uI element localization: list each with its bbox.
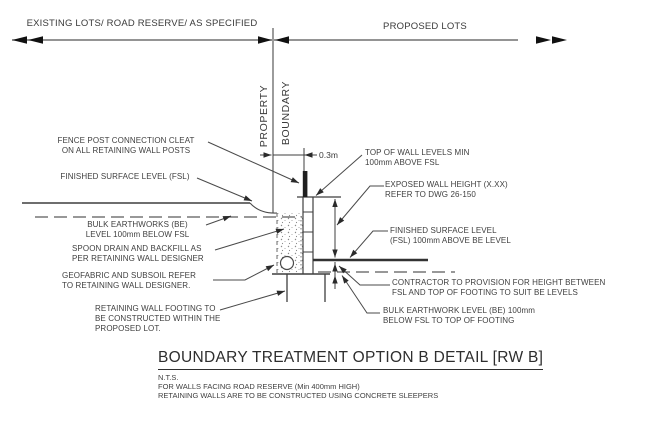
geofabric-leader xyxy=(213,265,274,280)
retaining-wall-section xyxy=(297,197,341,274)
label-line: PER RETAINING WALL DESIGNER xyxy=(72,254,204,264)
label-line: REFER TO DWG 26-150 xyxy=(385,190,508,200)
top-of-wall-leader xyxy=(316,155,362,196)
bulk-right-leader xyxy=(342,276,380,314)
label-line: ON ALL RETAINING WALL POSTS xyxy=(40,146,212,156)
bulk-earthworks-left-label: BULK EARTHWORKS (BE) LEVEL 100mm BELOW F… xyxy=(65,220,210,240)
label-line: TOP OF WALL LEVELS MIN xyxy=(365,148,469,158)
note-nts: N.T.S. xyxy=(158,373,438,382)
label-line: FINISHED SURFACE LEVEL (FSL) xyxy=(50,172,200,182)
top-of-wall-label: TOP OF WALL LEVELS MIN 100mm ABOVE FSL xyxy=(365,148,469,168)
offset-dimension-label: 0.3m xyxy=(319,150,338,160)
drawing-notes: N.T.S. FOR WALLS FACING ROAD RESERVE (Mi… xyxy=(158,373,438,400)
label-line: BE CONSTRUCTED WITHIN THE xyxy=(95,314,220,324)
property-label: PROPERTY xyxy=(258,80,270,152)
wall-footing xyxy=(272,274,330,302)
exposed-wall-height-label: EXPOSED WALL HEIGHT (X.XX) REFER TO DWG … xyxy=(385,180,508,200)
footing-label: RETAINING WALL FOOTING TO BE CONSTRUCTED… xyxy=(95,304,220,334)
contractor-provision-label: CONTRACTOR TO PROVISION FOR HEIGHT BETWE… xyxy=(392,278,605,298)
label-line: 100mm ABOVE FSL xyxy=(365,158,469,168)
spoon-drain-label: SPOON DRAIN AND BACKFILL AS PER RETAININ… xyxy=(72,244,204,264)
label-line: CONTRACTOR TO PROVISION FOR HEIGHT BETWE… xyxy=(392,278,605,288)
label-line: FENCE POST CONNECTION CLEAT xyxy=(40,136,212,146)
fence-post-label: FENCE POST CONNECTION CLEAT ON ALL RETAI… xyxy=(40,136,212,156)
label-line: FSL AND TOP OF FOOTING TO SUIT BE LEVELS xyxy=(392,288,605,298)
label-line: BULK EARTHWORK LEVEL (BE) 100mm xyxy=(383,306,535,316)
label-line: PROPOSED LOT. xyxy=(95,324,220,334)
footing-leader xyxy=(220,291,285,310)
label-line: FINISHED SURFACE LEVEL xyxy=(390,226,511,236)
exposed-height-leader xyxy=(337,186,384,225)
existing-lots-label: EXISTING LOTS/ ROAD RESERVE/ AS SPECIFIE… xyxy=(18,18,266,29)
label-line: GEOFABRIC AND SUBSOIL REFER xyxy=(62,271,196,281)
fence-post xyxy=(303,171,308,197)
label-line: LEVEL 100mm BELOW FSL xyxy=(65,230,210,240)
fsl-right-leader xyxy=(350,231,388,258)
label-line: (FSL) 100mm ABOVE BE LEVEL xyxy=(390,236,511,246)
label-line: EXPOSED WALL HEIGHT (X.XX) xyxy=(385,180,508,190)
fsl-right-label: FINISHED SURFACE LEVEL (FSL) 100mm ABOVE… xyxy=(390,226,511,246)
fsl-left-leader xyxy=(197,178,252,201)
existing-lots-extent-line xyxy=(12,36,272,43)
bulk-earthwork-right-label: BULK EARTHWORK LEVEL (BE) 100mm BELOW FS… xyxy=(383,306,535,326)
fsl-left-label: FINISHED SURFACE LEVEL (FSL) xyxy=(50,172,200,182)
proposed-lots-label: PROPOSED LOTS xyxy=(335,21,515,32)
spoon-drain-leader xyxy=(215,229,284,250)
boundary-label: BOUNDARY xyxy=(280,77,292,149)
label-line: SPOON DRAIN AND BACKFILL AS xyxy=(72,244,204,254)
label-line: BELOW FSL TO TOP OF FOOTING xyxy=(383,316,535,326)
drawing-title: BOUNDARY TREATMENT OPTION B DETAIL [RW B… xyxy=(158,349,543,370)
finished-surface-level-line-left xyxy=(22,203,277,213)
label-line: TO RETAINING WALL DESIGNER. xyxy=(62,281,196,291)
proposed-lots-extent-line xyxy=(274,36,567,43)
note-concrete-sleepers: RETAINING WALLS ARE TO BE CONSTRUCTED US… xyxy=(158,391,438,400)
note-walls-facing: FOR WALLS FACING ROAD RESERVE (Min 400mm… xyxy=(158,382,438,391)
label-line: BULK EARTHWORKS (BE) xyxy=(65,220,210,230)
geofabric-label: GEOFABRIC AND SUBSOIL REFER TO RETAINING… xyxy=(62,271,196,291)
boundary-treatment-detail-drawing: EXISTING LOTS/ ROAD RESERVE/ AS SPECIFIE… xyxy=(0,0,670,435)
label-line: RETAINING WALL FOOTING TO xyxy=(95,304,220,314)
subsoil-drain-pipe xyxy=(281,257,294,270)
